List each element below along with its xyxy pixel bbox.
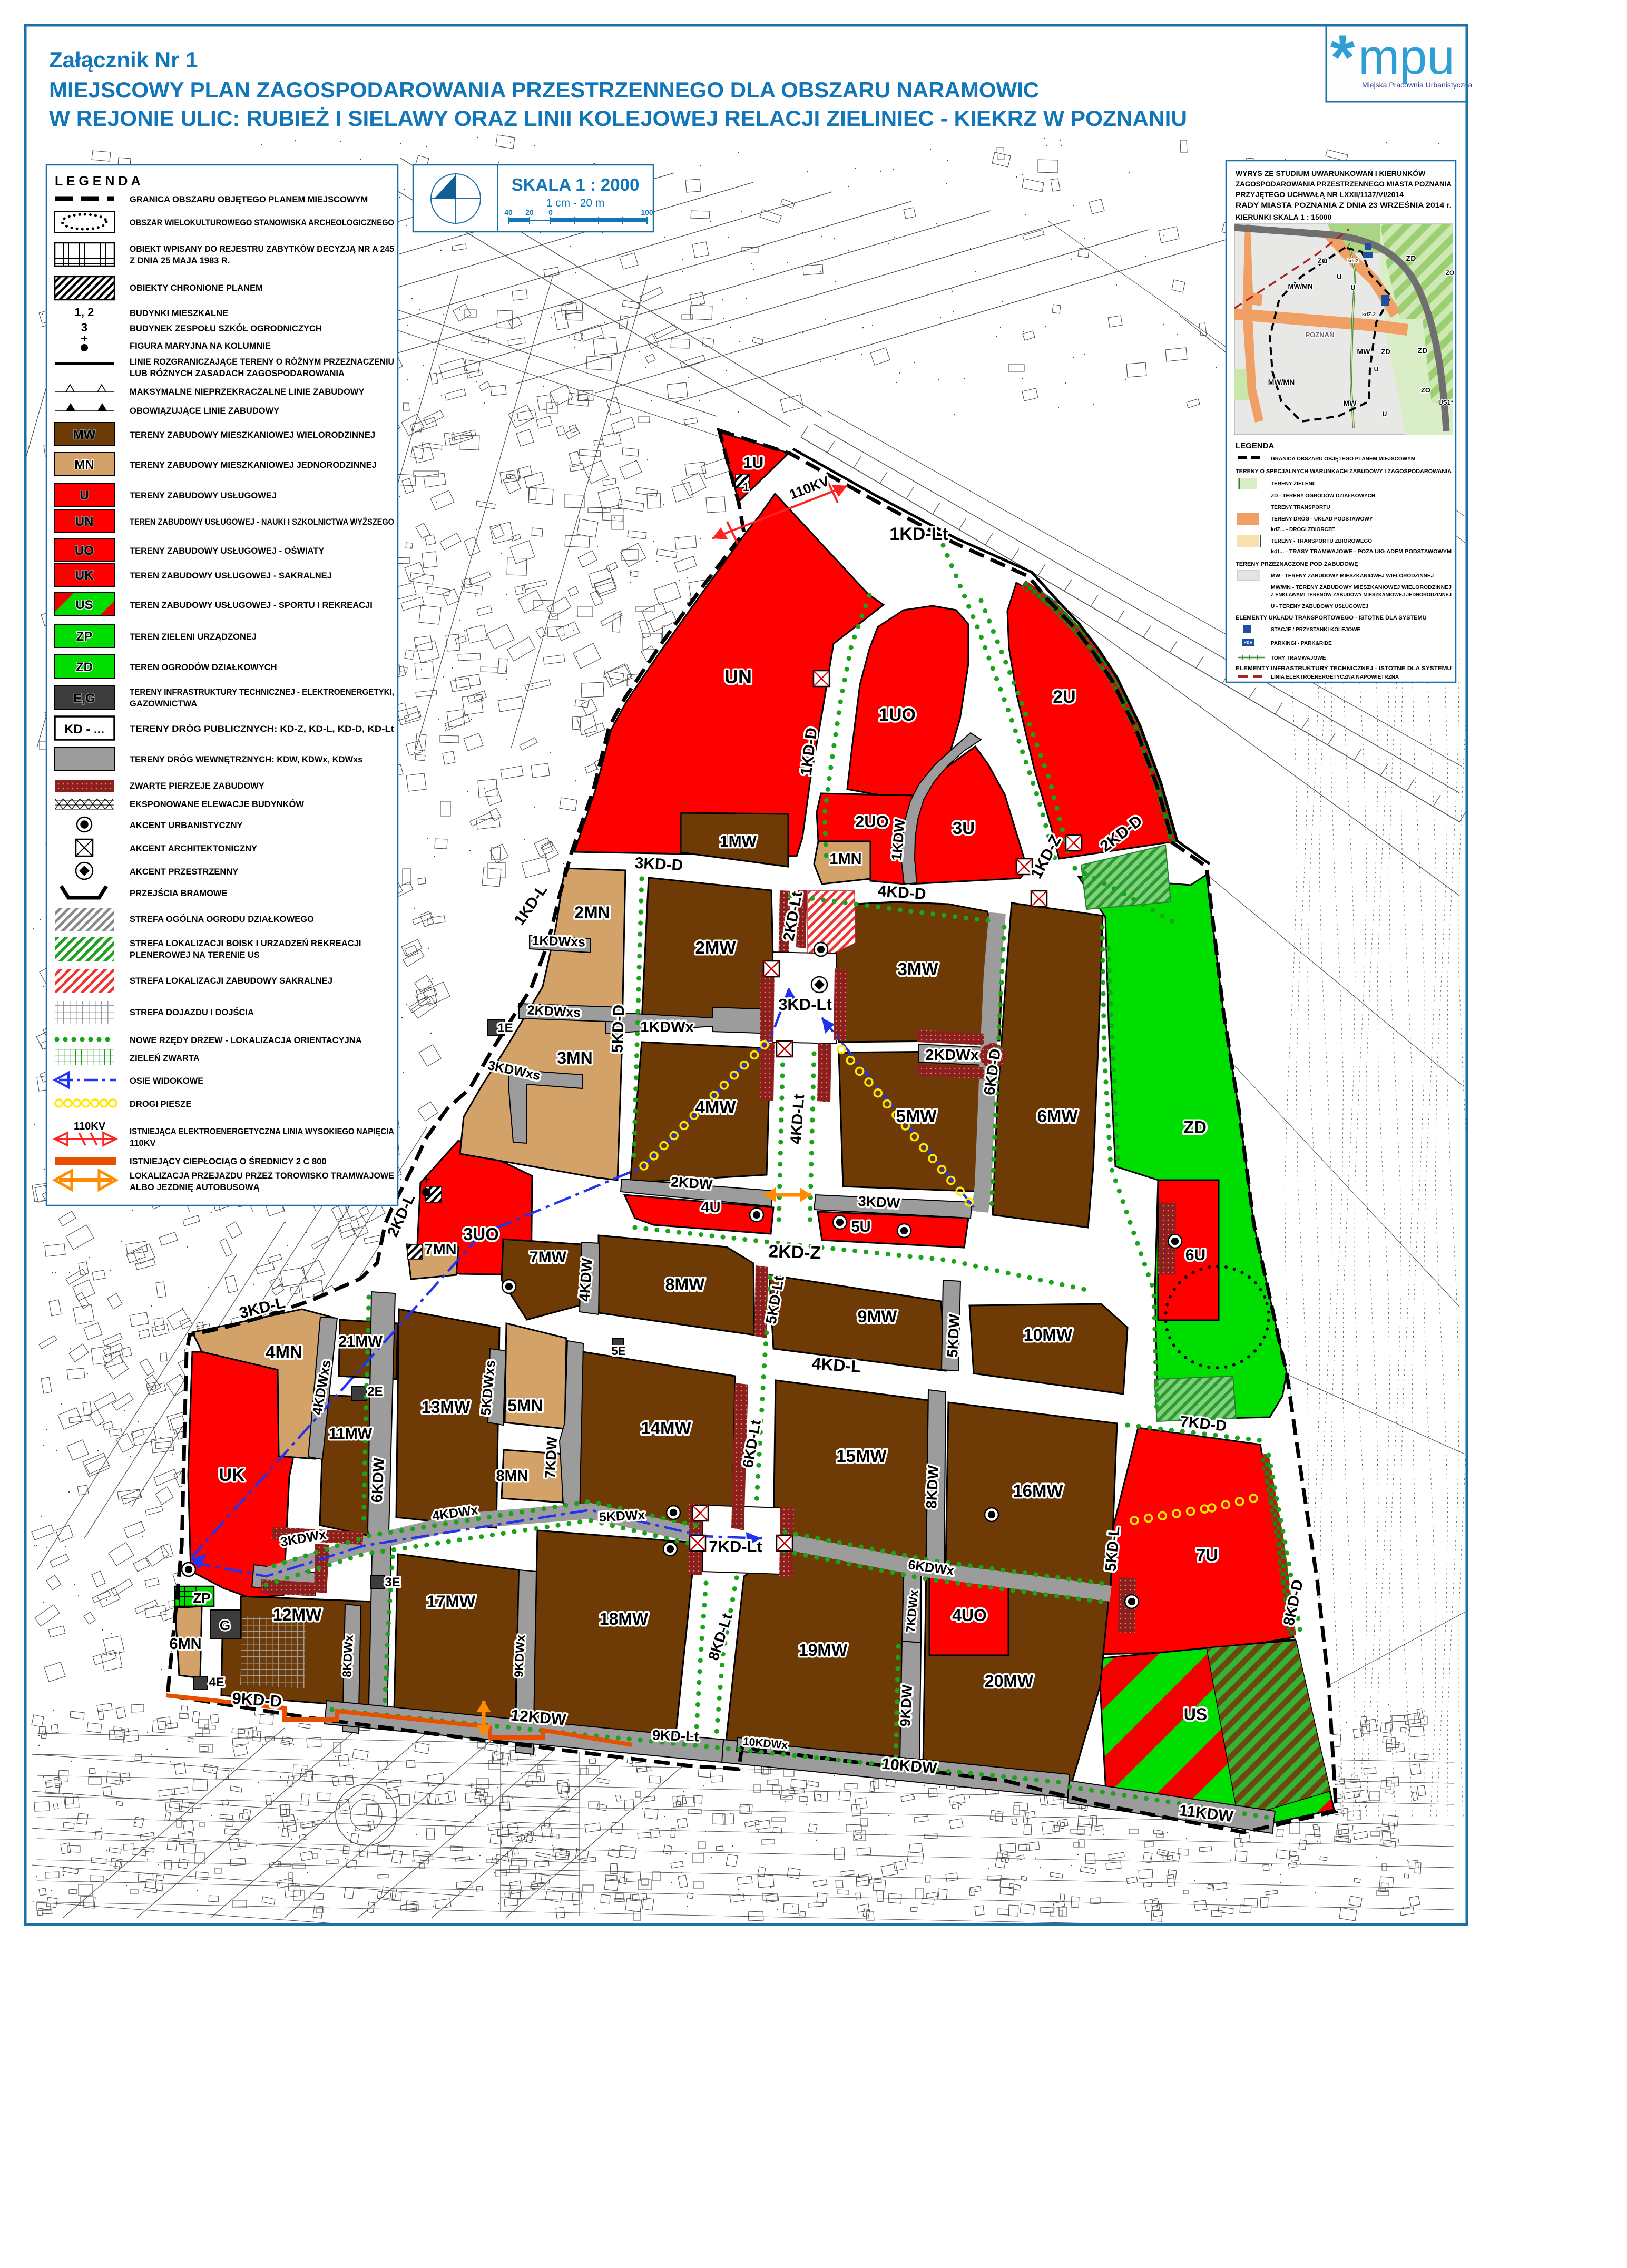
svg-text:LINIE ROZGRANICZAJĄCE TERENY O: LINIE ROZGRANICZAJĄCE TERENY O RÓŻNYM PR… — [130, 357, 394, 367]
svg-text:Miejska Pracownia Urbanistyczn: Miejska Pracownia Urbanistyczna — [1362, 81, 1473, 89]
svg-text:3MN: 3MN — [557, 1048, 593, 1067]
svg-text:U - TERENY ZABUDOWY USŁUGOWEJ: U - TERENY ZABUDOWY USŁUGOWEJ — [1271, 604, 1368, 610]
svg-text:STREFA DOJAZDU I DOJŚCIA: STREFA DOJAZDU I DOJŚCIA — [130, 1007, 254, 1017]
svg-text:9KDW: 9KDW — [897, 1684, 915, 1727]
svg-text:STREFA LOKALIZACJI BOISK I URZ: STREFA LOKALIZACJI BOISK I URZADZEŃ REKR… — [130, 938, 361, 948]
svg-text:KIERUNKI SKALA 1 : 15000: KIERUNKI SKALA 1 : 15000 — [1236, 213, 1332, 221]
svg-text:UK: UK — [75, 568, 94, 583]
svg-text:15MW: 15MW — [836, 1446, 887, 1466]
svg-text:5KDW: 5KDW — [944, 1313, 963, 1358]
svg-text:3: 3 — [81, 321, 87, 334]
svg-text:3KD-Lt: 3KD-Lt — [778, 995, 832, 1014]
svg-text:MAKSYMALNE NIEPRZEKRACZALNE LI: MAKSYMALNE NIEPRZEKRACZALNE LINIE ZABUDO… — [130, 387, 365, 397]
svg-text:3UO: 3UO — [463, 1224, 499, 1244]
svg-text:Załącznik Nr 1: Załącznik Nr 1 — [49, 47, 198, 72]
svg-text:4MW: 4MW — [695, 1097, 737, 1117]
svg-text:SKALA 1 : 2000: SKALA 1 : 2000 — [512, 175, 640, 194]
svg-text:9KD-Lt: 9KD-Lt — [652, 1727, 699, 1744]
svg-text:2KDWxs: 2KDWxs — [527, 1003, 581, 1020]
svg-text:NOWE RZĘDY DRZEW - LOKALIZACJA: NOWE RZĘDY DRZEW - LOKALIZACJA ORIENTACY… — [130, 1036, 362, 1045]
svg-text:US: US — [75, 598, 93, 612]
svg-text:kdt... - TRASY TRAMWAJOWE -: kdt... - TRASY TRAMWAJOWE - POZA UKŁADEM… — [1271, 549, 1452, 555]
svg-text:6MW: 6MW — [1037, 1106, 1079, 1126]
svg-text:OBSZAR WIELOKULTUROWEGO STANOW: OBSZAR WIELOKULTUROWEGO STANOWISKA ARCHE… — [130, 218, 394, 228]
svg-text:4KD-D: 4KD-D — [877, 882, 927, 903]
svg-text:U: U — [1374, 366, 1379, 373]
svg-text:19MW: 19MW — [799, 1641, 848, 1660]
svg-text:2KDWx: 2KDWx — [925, 1047, 979, 1064]
svg-text:LEGENDA: LEGENDA — [1236, 441, 1275, 450]
svg-text:*: * — [1330, 22, 1355, 93]
svg-text:UN: UN — [75, 515, 94, 529]
svg-text:GRANICA OBSZARU OBJĘTEGO PLANE: GRANICA OBSZARU OBJĘTEGO PLANEM MIEJSCOW… — [130, 195, 368, 204]
svg-text:1 cm - 20 m: 1 cm - 20 m — [546, 197, 605, 209]
svg-text:3KD-D: 3KD-D — [634, 855, 683, 875]
svg-text:ZD: ZD — [76, 660, 93, 674]
svg-text:U: U — [80, 488, 89, 503]
svg-text:5KD-D: 5KD-D — [609, 1004, 628, 1053]
svg-text:1MN: 1MN — [829, 851, 861, 868]
svg-text:110KV: 110KV — [74, 1121, 106, 1132]
svg-text:2U: 2U — [1053, 687, 1075, 707]
svg-text:1KDWxs: 1KDWxs — [532, 933, 585, 950]
svg-text:0: 0 — [548, 208, 553, 217]
svg-text:4KDW: 4KDW — [576, 1258, 595, 1302]
svg-text:7MN: 7MN — [424, 1241, 456, 1258]
svg-text:TEREN ZIELENI URZĄDZONEJ: TEREN ZIELENI URZĄDZONEJ — [130, 632, 257, 642]
svg-text:PARKINGI - PARK&RIDE: PARKINGI - PARK&RIDE — [1271, 641, 1332, 646]
svg-text:3KDW: 3KDW — [858, 1193, 900, 1211]
svg-text:1U: 1U — [743, 454, 763, 472]
svg-text:ZP: ZP — [76, 630, 93, 644]
svg-text:TEREN ZABUDOWY USŁUGOWEJ - SAK: TEREN ZABUDOWY USŁUGOWEJ - SAKRALNEJ — [130, 571, 332, 581]
svg-text:1: 1 — [743, 480, 749, 494]
svg-text:1UO: 1UO — [879, 705, 916, 725]
svg-text:ZWARTE PIERZEJE ZABUDOWY: ZWARTE PIERZEJE ZABUDOWY — [130, 781, 264, 791]
svg-text:7MW: 7MW — [530, 1249, 567, 1266]
svg-text:TEREN ZABUDOWY USŁUGOWEJ - NAU: TEREN ZABUDOWY USŁUGOWEJ - NAUKI I SZKOL… — [130, 517, 394, 527]
svg-text:STREFA LOKALIZACJI ZABUDOWY SA: STREFA LOKALIZACJI ZABUDOWY SAKRALNEJ — [130, 976, 332, 986]
svg-text:ZAGOSPODAROWANIA PRZESTRZENNEG: ZAGOSPODAROWANIA PRZESTRZENNEGO MIASTA P… — [1236, 180, 1452, 188]
svg-text:2UO: 2UO — [855, 812, 889, 831]
svg-text:STACJE / PRZYSTANKI KOLEJOWE: STACJE / PRZYSTANKI KOLEJOWE — [1271, 627, 1361, 633]
svg-text:ALBO JEZDNIĘ AUTOBUSOWĄ: ALBO JEZDNIĘ AUTOBUSOWĄ — [130, 1183, 260, 1192]
svg-text:TERENY PRZEZNACZONE POD ZABUDO: TERENY PRZEZNACZONE POD ZABUDOWĘ — [1236, 561, 1358, 567]
svg-text:ZO: ZO — [1421, 386, 1430, 394]
svg-text:OBIEKTY CHRONIONE PLANEM: OBIEKTY CHRONIONE PLANEM — [130, 283, 263, 293]
svg-text:Z DNIA 25 MAJA 1983 R.: Z DNIA 25 MAJA 1983 R. — [130, 256, 230, 266]
svg-text:11MW: 11MW — [329, 1426, 373, 1442]
svg-text:5U: 5U — [851, 1219, 870, 1235]
svg-text:2MN: 2MN — [574, 903, 610, 922]
svg-text:7U: 7U — [1196, 1545, 1218, 1565]
svg-text:ZD: ZD — [1183, 1117, 1207, 1137]
svg-text:ZIELEŃ ZWARTA: ZIELEŃ ZWARTA — [130, 1053, 200, 1063]
svg-text:ZO: ZO — [1317, 257, 1328, 265]
svg-text:2KDW: 2KDW — [670, 1174, 713, 1193]
svg-text:TEREN ZABUDOWY USŁUGOWEJ - SPO: TEREN ZABUDOWY USŁUGOWEJ - SPORTU I REKR… — [130, 601, 373, 610]
svg-text:10MW: 10MW — [1024, 1326, 1073, 1344]
svg-text:TERENY ZABUDOWY MIESZKANIOWEJ: TERENY ZABUDOWY MIESZKANIOWEJ JEDNORODZI… — [130, 460, 377, 470]
svg-text:6KDW: 6KDW — [369, 1457, 388, 1503]
svg-text:40: 40 — [504, 208, 513, 217]
svg-text:STREFA OGÓLNA OGRODU DZIAŁKOWE: STREFA OGÓLNA OGRODU DZIAŁKOWEGO — [130, 914, 314, 924]
svg-text:TORY TRAMWAJOWE: TORY TRAMWAJOWE — [1271, 655, 1326, 661]
svg-text:TERENY O SPECJALNYCH WARUNKACH: TERENY O SPECJALNYCH WARUNKACH ZABUDOWY … — [1236, 468, 1452, 475]
svg-text:2E: 2E — [367, 1385, 383, 1399]
svg-text:8MW: 8MW — [665, 1275, 705, 1294]
svg-text:ZD: ZD — [1381, 348, 1390, 356]
svg-text:E,G: E,G — [73, 691, 95, 705]
svg-text:W REJONIE ULIC: RUBIEŻ I SIELA: W REJONIE ULIC: RUBIEŻ I SIELAWY ORAZ LI… — [49, 106, 1187, 131]
svg-text:ZD: ZD — [1406, 254, 1416, 262]
svg-text:AKCENT ARCHITEKTONICZNY: AKCENT ARCHITEKTONICZNY — [130, 844, 257, 853]
svg-text:12MW: 12MW — [273, 1605, 322, 1624]
svg-text:TEREN OGRODÓW DZIAŁKOWYCH: TEREN OGRODÓW DZIAŁKOWYCH — [130, 662, 277, 672]
svg-text:MW/MN: MW/MN — [1288, 282, 1313, 290]
svg-text:MW/MN - TERENY ZABUDOWY MIESZK: MW/MN - TERENY ZABUDOWY MIESZKANIOWEJ WI… — [1271, 585, 1452, 591]
svg-text:5MW: 5MW — [896, 1106, 937, 1126]
svg-text:WYRYS ZE STUDIUM UWARUNKOWAŃ I: WYRYS ZE STUDIUM UWARUNKOWAŃ I KIERUNKÓW — [1236, 169, 1426, 178]
svg-text:PLENEROWEJ NA TERENIE US: PLENEROWEJ NA TERENIE US — [130, 950, 260, 960]
svg-text:mpu: mpu — [1358, 29, 1455, 84]
svg-text:18MW: 18MW — [600, 1609, 649, 1628]
svg-text:ELEMENTY UKŁADU TRANSPORTOWEGO: ELEMENTY UKŁADU TRANSPORTOWEGO - ISTOTNE… — [1236, 615, 1427, 621]
svg-text:ISTNIEJĄCY CIEPŁOCIĄG O ŚREDNI: ISTNIEJĄCY CIEPŁOCIĄG O ŚREDNICY 2 C 800 — [130, 1156, 327, 1166]
svg-text:U: U — [1337, 273, 1341, 281]
svg-text:DROGI PIESZE: DROGI PIESZE — [130, 1099, 191, 1109]
svg-text:ZD: ZD — [1418, 346, 1428, 355]
svg-text:ZD - TERENY OGRODÓW DZIAŁKOWYC: ZD - TERENY OGRODÓW DZIAŁKOWYCH — [1271, 492, 1375, 499]
svg-text:TERENY - TRANSPORTU ZBIOROWEGO: TERENY - TRANSPORTU ZBIOROWEGO — [1271, 538, 1372, 544]
svg-text:TERENY TRANSPORTU: TERENY TRANSPORTU — [1271, 505, 1330, 510]
svg-text:OSIE WIDOKOWE: OSIE WIDOKOWE — [130, 1076, 203, 1086]
svg-text:4U: 4U — [701, 1199, 720, 1216]
svg-text:ELEMENTY INFRASTRUKTURY TECHNI: ELEMENTY INFRASTRUKTURY TECHNICZNEJ - IS… — [1236, 665, 1452, 672]
svg-text:PRZYJĘTEGO UCHWAŁĄ NR LXXII/11: PRZYJĘTEGO UCHWAŁĄ NR LXXII/1137/VI/2014 — [1236, 190, 1404, 199]
svg-text:kdZ.2: kdZ.2 — [1362, 312, 1376, 318]
svg-text:7KDW: 7KDW — [542, 1436, 560, 1479]
svg-text:ZP: ZP — [193, 1590, 210, 1606]
svg-text:13MW: 13MW — [422, 1398, 471, 1417]
svg-text:2MW: 2MW — [695, 938, 737, 957]
svg-text:BUDYNEK ZESPOŁU SZKÓŁ OGRODNIC: BUDYNEK ZESPOŁU SZKÓŁ OGRODNICZYCH — [130, 323, 322, 333]
svg-text:U: U — [1383, 410, 1387, 418]
svg-text:RADY MIASTA POZNANIA Z DNIA 23: RADY MIASTA POZNANIA Z DNIA 23 WRZEŚNIA … — [1236, 200, 1452, 209]
svg-text:LOKALIZACJA PRZEJAZDU PRZEZ TO: LOKALIZACJA PRZEJAZDU PRZEZ TOROWISKO TR… — [130, 1171, 394, 1181]
svg-text:5KDWx: 5KDWx — [599, 1508, 645, 1525]
svg-text:16MW: 16MW — [1013, 1481, 1063, 1500]
svg-text:kdZ... - DROGI ZBIORCZE: kdZ... - DROGI ZBIORCZE — [1271, 527, 1335, 533]
svg-text:EKSPONOWANE ELEWACJE BUDYNKÓW: EKSPONOWANE ELEWACJE BUDYNKÓW — [130, 799, 304, 809]
svg-text:4MN: 4MN — [266, 1342, 302, 1362]
svg-text:MW: MW — [1357, 347, 1371, 356]
svg-text:POZNAŃ: POZNAŃ — [1306, 331, 1335, 339]
svg-text:3MW: 3MW — [898, 959, 939, 979]
svg-text:ZO: ZO — [1446, 269, 1455, 277]
svg-text:TERENY INFRASTRUKTURY TECHNICZ: TERENY INFRASTRUKTURY TECHNICZNEJ - ELEK… — [130, 688, 394, 697]
svg-text:4KD-L: 4KD-L — [811, 1354, 862, 1376]
svg-text:8KDWx: 8KDWx — [340, 1634, 356, 1677]
svg-text:5E: 5E — [612, 1344, 626, 1358]
svg-text:3E: 3E — [385, 1575, 400, 1589]
svg-text:TERENY ZABUDOWY USŁUGOWEJ: TERENY ZABUDOWY USŁUGOWEJ — [130, 491, 277, 500]
svg-text:KD - ...: KD - ... — [64, 722, 104, 737]
svg-text:17MW: 17MW — [427, 1592, 476, 1611]
svg-text:ISTNIEJĄCA ELEKTROENERGETYCZNA: ISTNIEJĄCA ELEKTROENERGETYCZNA LINIA WYS… — [130, 1127, 394, 1136]
svg-text:1MW: 1MW — [720, 833, 757, 850]
svg-text:2KD-Z: 2KD-Z — [768, 1241, 821, 1263]
svg-text:U: U — [1350, 283, 1355, 291]
svg-text:GAZOWNICTWA: GAZOWNICTWA — [130, 699, 197, 709]
svg-text:9MW: 9MW — [858, 1307, 897, 1326]
svg-text:TERENY ZIELENI:: TERENY ZIELENI: — [1271, 481, 1316, 487]
svg-text:4UO: 4UO — [952, 1606, 987, 1625]
svg-text:110KV: 110KV — [130, 1138, 156, 1148]
svg-text:PRZEJŚCIA BRAMOWE: PRZEJŚCIA BRAMOWE — [130, 888, 227, 898]
svg-text:TERENY DRÓG PUBLICZNYCH: KD-Z,: TERENY DRÓG PUBLICZNYCH: KD-Z, KD-L, KD-… — [130, 724, 395, 734]
svg-text:FIGURA MARYJNA NA KOLUMNIE: FIGURA MARYJNA NA KOLUMNIE — [130, 341, 271, 351]
svg-text:1KDWx: 1KDWx — [640, 1019, 694, 1036]
svg-text:UK: UK — [219, 1465, 245, 1485]
svg-text:MW - TERENY ZABUDOWY MIESZKANI: MW - TERENY ZABUDOWY MIESZKANIOWEJ WIELO… — [1271, 573, 1434, 579]
svg-text:9KD-D: 9KD-D — [231, 1689, 282, 1711]
svg-text:6MN: 6MN — [169, 1636, 201, 1653]
svg-text:MW: MW — [1344, 399, 1357, 407]
svg-text:US1*: US1* — [1438, 399, 1453, 406]
svg-text:20MW: 20MW — [985, 1672, 1034, 1691]
svg-text:6U: 6U — [1185, 1246, 1205, 1264]
svg-text:MN: MN — [74, 458, 94, 472]
svg-text:LINIA ELEKTROENERGETYCZNA NAPO: LINIA ELEKTROENERGETYCZNA NAPOWIETRZNA — [1271, 674, 1399, 680]
svg-text:TERENY ZABUDOWY USŁUGOWEJ - OŚ: TERENY ZABUDOWY USŁUGOWEJ - OŚWIATY — [130, 546, 324, 556]
svg-text:1E: 1E — [497, 1021, 513, 1035]
svg-text:7KD-Lt: 7KD-Lt — [709, 1537, 762, 1556]
svg-text:G: G — [220, 1617, 230, 1633]
svg-text:MW/MN: MW/MN — [1268, 378, 1295, 386]
svg-text:BUDYNKI MIESZKALNE: BUDYNKI MIESZKALNE — [130, 309, 228, 318]
svg-text:TERENY ZABUDOWY MIESZKANIOWEJ: TERENY ZABUDOWY MIESZKANIOWEJ WIELORODZI… — [130, 430, 375, 440]
svg-text:MIEJSCOWY PLAN ZAGOSPODAROWANI: MIEJSCOWY PLAN ZAGOSPODAROWANIA PRZESTRZ… — [49, 77, 1039, 102]
svg-text:P&R: P&R — [1244, 640, 1253, 645]
svg-text:8KDW: 8KDW — [923, 1465, 942, 1509]
svg-text:AKCENT URBANISTYCZNY: AKCENT URBANISTYCZNY — [130, 821, 243, 830]
svg-text:1, 2: 1, 2 — [75, 306, 94, 319]
svg-text:GRANICA OBSZARU OBJĘTEGO PLANE: GRANICA OBSZARU OBJĘTEGO PLANEM MIEJSCOW… — [1271, 456, 1415, 462]
svg-text:3U: 3U — [953, 818, 975, 838]
svg-text:OBIEKT WPISANY DO REJESTRU ZAB: OBIEKT WPISANY DO REJESTRU ZABYTKÓW DECY… — [130, 244, 394, 254]
svg-text:TERENY DRÓG WEWNĘTRZNYCH: KDW,: TERENY DRÓG WEWNĘTRZNYCH: KDW, KDWx, KDW… — [130, 754, 362, 764]
svg-text:1KD-Lt: 1KD-Lt — [889, 524, 948, 544]
svg-text:AKCENT PRZESTRZENNY: AKCENT PRZESTRZENNY — [130, 867, 238, 877]
svg-text:Z ENKLAWAMI TERENÓW ZABUDOWY M: Z ENKLAWAMI TERENÓW ZABUDOWY MIESZKANIOW… — [1271, 591, 1452, 598]
svg-text:OBOWIĄZUJĄCE LINIE ZABUDOWY: OBOWIĄZUJĄCE LINIE ZABUDOWY — [130, 406, 279, 416]
svg-text:LUB RÓŻNYCH ZASADACH ZAGOSPODA: LUB RÓŻNYCH ZASADACH ZAGOSPODAROWANIA — [130, 368, 345, 378]
svg-text:20: 20 — [525, 208, 534, 217]
svg-text:21MW: 21MW — [338, 1333, 383, 1350]
svg-text:5MN: 5MN — [507, 1396, 543, 1415]
svg-text:MW: MW — [73, 428, 96, 442]
svg-text:L E G E N D A: L E G E N D A — [55, 174, 141, 189]
svg-text:UN: UN — [724, 666, 752, 688]
svg-text:4KD-Lt: 4KD-Lt — [788, 1094, 808, 1145]
svg-text:UO: UO — [75, 544, 94, 558]
svg-text:4E: 4E — [209, 1675, 224, 1690]
svg-text:kdt.2: kdt.2 — [1347, 258, 1358, 263]
svg-text:TERENY DRÓG - UKŁAD PODSTAWOWY: TERENY DRÓG - UKŁAD PODSTAWOWY — [1271, 515, 1373, 522]
svg-text:9KDWx: 9KDWx — [512, 1634, 527, 1677]
svg-text:100: 100 — [641, 208, 653, 217]
svg-text:US: US — [1184, 1705, 1207, 1724]
svg-text:8MN: 8MN — [496, 1468, 528, 1485]
svg-text:14MW: 14MW — [641, 1418, 691, 1438]
